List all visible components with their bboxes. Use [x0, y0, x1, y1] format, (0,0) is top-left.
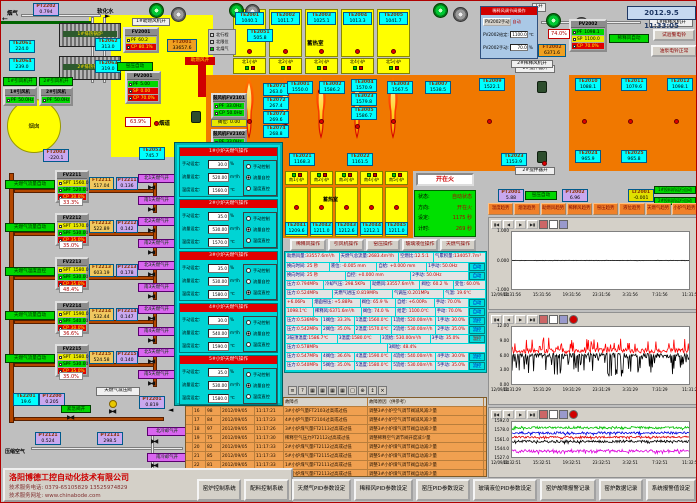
- bottom-button-7[interactable]: 窑炉数据记录: [599, 479, 643, 501]
- sensor-dot: [487, 119, 492, 124]
- y-tick-label: 1561.0: [489, 437, 509, 443]
- data-value: 19.6℃: [455, 291, 471, 296]
- gas-auto-mode-label: 天燃气流量自动: [5, 223, 55, 232]
- radio-row[interactable]: 流量自控: [244, 328, 276, 339]
- data-label: 4手动:: [437, 354, 450, 359]
- controller-row: SPT1560.0: [58, 180, 86, 186]
- mode-chip: 自动: [469, 299, 485, 307]
- cooling-south-valve-label[interactable]: 南冷却气开: [147, 453, 187, 462]
- status-label: 方向:: [418, 203, 430, 214]
- controller-row: CP70.0%: [128, 95, 158, 101]
- popup-field-input[interactable]: 1580.0: [208, 290, 229, 299]
- op-button-3[interactable]: 玻璃液位操作: [402, 239, 438, 251]
- sensor-TE2062: TE2062313.0: [95, 38, 121, 51]
- param-label: CP: [131, 45, 137, 50]
- valve-icon[interactable]: ▶◀: [148, 294, 153, 300]
- valve-icon[interactable]: ▶◀: [148, 338, 153, 344]
- sensor-value: 0.819: [140, 403, 164, 409]
- radio-row[interactable]: 温度直控: [244, 183, 276, 194]
- toolbar-icon[interactable]: ×: [378, 386, 387, 395]
- dialog-sp-input[interactable]: 1100.0: [510, 31, 528, 38]
- popup-field-unit: ℃: [230, 239, 242, 247]
- series-3#小炉: [512, 436, 689, 439]
- radio-icon[interactable]: [246, 279, 251, 284]
- x-tick-label: 11:31:29: [503, 387, 521, 392]
- combustion-air-on-label: 助燃风开: [185, 57, 215, 65]
- sensor-dot: [319, 49, 324, 54]
- data-cell: 4温度:1590.0℃: [355, 353, 392, 361]
- popup-field-input[interactable]: 530.00: [208, 381, 229, 390]
- data-cell: 2手动: 35.0%: [436, 326, 468, 334]
- trend-button-3[interactable]: 稀释风趋势: [567, 203, 592, 215]
- popup-field-unit: m³/h: [230, 382, 242, 390]
- chart-nav-button[interactable]: ▶: [515, 315, 526, 324]
- data-label: 手动:: [437, 309, 447, 314]
- port-label: 南2小炉: [311, 177, 332, 183]
- alarm-cell: 调整稀释空气调节阀开度减少量: [368, 434, 484, 442]
- chart-nav-button[interactable]: ▶▮: [527, 220, 538, 229]
- valve-icon[interactable]: ▶◀: [109, 409, 114, 415]
- data-label: 气调压:: [394, 291, 408, 296]
- op-button-4[interactable]: 天燃气操作: [440, 239, 476, 251]
- sensor-value: 1586.2: [320, 88, 344, 94]
- param-label: SP: [133, 89, 138, 94]
- bottom-button-2[interactable]: 天燃气PID参数设定: [292, 479, 351, 501]
- port-tab-south[interactable]: 南2小炉: [310, 171, 333, 185]
- port-tab-north[interactable]: 北2小炉: [269, 58, 302, 74]
- summary-cell: 空燃比:12.5:1: [399, 253, 433, 262]
- controller-row: PF33.0Hz: [214, 103, 244, 109]
- radio-icon[interactable]: [246, 383, 251, 388]
- sensor-tag: PT2214: [117, 309, 137, 315]
- record-icon[interactable]: [569, 410, 578, 419]
- radio-icon[interactable]: [246, 216, 251, 221]
- radio-row[interactable]: 温度直控: [244, 391, 276, 402]
- datetime-display: 2012.9.5 11:33:05: [627, 6, 696, 20]
- y-tick-label: 1578.0: [489, 427, 509, 433]
- status-label: 设定:: [418, 213, 430, 224]
- data-value: 70.0%: [447, 309, 462, 314]
- toolbar-icon[interactable]: ▦: [308, 386, 317, 395]
- gas-valve-south-label[interactable]: 南3天燃气开: [138, 283, 175, 292]
- toolbar-icon[interactable]: ▦: [318, 386, 327, 395]
- sensor-value: 1212.1: [361, 229, 382, 235]
- sensor-value: 1211.0: [311, 229, 332, 235]
- y-tick-label: 1592.0: [489, 418, 509, 424]
- radio-row[interactable]: 温度直控: [244, 287, 276, 298]
- alarm-cell: 11:17:23: [255, 416, 284, 424]
- data-value: 35.0%: [444, 336, 459, 341]
- valve-icon[interactable]: ▶◀: [148, 250, 153, 256]
- radio-label: 手动控制: [253, 164, 270, 170]
- indicator-square: [43, 99, 46, 102]
- sensor-TE2021: TE20211168.3: [289, 153, 315, 166]
- popup-field-input[interactable]: 530.00: [208, 225, 229, 234]
- data-cell: 2流给: 530.00m³/h: [392, 326, 435, 334]
- alarm-row[interactable]: 19752012/09/0511:17:30稀释空气压力PT2112过高或过低调…: [186, 434, 486, 443]
- right-arrow-icon: ►: [105, 13, 110, 20]
- alarm-cell: 4#小炉气量FT2104过高或过低: [284, 416, 368, 424]
- alarm-cell: 调整3#小炉煤气调节阀自动减少量: [368, 425, 484, 433]
- alarm-row[interactable]: 18972012/09/0511:17:263#小炉煤气量FT2113过高或过低…: [186, 425, 486, 434]
- indicator-square: [59, 363, 62, 366]
- sensor-TE2001: TE20011040.1: [235, 12, 264, 25]
- popup-field-input[interactable]: 1570.0: [208, 238, 229, 247]
- sensor-tag: PT2121: [36, 433, 60, 439]
- popup-field-input[interactable]: 1580.0: [208, 394, 229, 403]
- data-cell: 液位: -0.005 mm: [330, 263, 377, 271]
- radio-icon[interactable]: [246, 331, 251, 336]
- data-label: 压力:: [287, 345, 297, 350]
- radio-icon[interactable]: [246, 290, 251, 295]
- sensor-value: 313.0: [96, 45, 120, 51]
- sensor-dot: [674, 119, 679, 124]
- port-tab-south[interactable]: 南4小炉: [360, 171, 383, 185]
- popup-field-input[interactable]: 30.0: [208, 316, 229, 325]
- row-cursor: [186, 416, 193, 424]
- radio-row[interactable]: 流量自控: [244, 380, 276, 391]
- printer-icon[interactable]: [539, 220, 548, 229]
- chimney: 烟囱: [7, 99, 61, 153]
- gas-valve-north-label[interactable]: 北3天燃气开: [138, 261, 175, 270]
- sensor-tag: TE2025: [622, 151, 646, 157]
- alarm-row[interactable]: 17842012/09/0511:17:234#小炉气量FT2104过高或过低调…: [186, 416, 486, 425]
- radio-row[interactable]: 手动控制: [244, 317, 276, 328]
- chart-nav-button[interactable]: ▶: [515, 220, 526, 229]
- gas-valve-south-label[interactable]: 南2天燃气开: [138, 239, 175, 248]
- zoom-icon[interactable]: [549, 410, 558, 419]
- sensor-tag: FT2212: [90, 221, 113, 227]
- alarm-cell: 2012/09/05: [221, 452, 255, 460]
- data-value: 35.0%: [450, 327, 465, 332]
- gas-valve-south-label[interactable]: 南1天燃气开: [138, 196, 175, 205]
- popup-field-input[interactable]: 1590.0: [208, 342, 229, 351]
- data-value: 74.0 %: [373, 309, 389, 314]
- valve-icon[interactable]: ▶◀: [148, 316, 153, 322]
- sensor-value: 1079.6: [622, 85, 646, 91]
- popup-section-1: 1#小炉天燃气操作手动设定:30.0%流量设定:520.00m³/h温度设定:1…: [179, 147, 278, 197]
- y-tick-label: 1.000: [489, 228, 509, 234]
- alarm-cell: 98: [206, 407, 221, 415]
- dialog-manual-input[interactable]: 70.0: [510, 44, 528, 51]
- bottom-button-1[interactable]: 配料控制系统: [244, 479, 288, 501]
- toolbar-icon[interactable]: ▦: [338, 386, 347, 395]
- op-button-2[interactable]: 窑压操作: [366, 239, 400, 251]
- param-value: 1580.0: [73, 355, 88, 360]
- data-cell: 压力:0.578MPa: [286, 344, 387, 352]
- data-cell: 3碹顶温度:1586.7℃: [286, 335, 337, 343]
- gas-valve-north-label[interactable]: 北4天燃气开: [138, 305, 175, 314]
- radio-row[interactable]: 流量自控: [244, 172, 276, 183]
- sensor-TE2011: TE20111079.6: [621, 78, 647, 91]
- summary-label: 空燃比:: [400, 254, 415, 259]
- trend-button-4[interactable]: 窑压趋势: [593, 203, 618, 215]
- data-label: 4温度:: [356, 354, 369, 359]
- alarm-row[interactable]: 16982012/09/0511:17:213#小炉气量FT2103过高或过低调…: [186, 407, 486, 416]
- printer-icon[interactable]: [539, 410, 548, 419]
- valve-icon[interactable]: ▶◀: [148, 228, 153, 234]
- toolbar-icon[interactable]: □: [348, 386, 357, 395]
- sensor-TE2042: TE20421211.0: [310, 222, 333, 235]
- valve-icon[interactable]: ▶◀: [148, 381, 153, 387]
- bottom-button-0[interactable]: 窑炉控制系统: [197, 479, 241, 501]
- alarm-row[interactable]: 21852012/09/0511:17:335#小炉煤气量FT2115过高或过低…: [186, 452, 486, 461]
- data-row: 压力:0.536MPa1阀位: 33.3%1温度:1560.0℃1流给: 520…: [286, 317, 485, 325]
- popup-section-title: 5#小炉天燃气操作: [180, 356, 277, 364]
- popup-field-input[interactable]: 1560.0: [208, 186, 229, 195]
- controller-FV2001: FV2001PF60.2CP80.1%: [123, 27, 159, 53]
- popup-field-input[interactable]: 35.0: [208, 264, 229, 273]
- gas-valve-south-label[interactable]: 南5天燃气开: [138, 370, 175, 379]
- trend-chart-0: ▮◀◀▶▶▮1.0000.000-1.00012/09/0411:31:5615…: [488, 217, 697, 310]
- bottom-button-8[interactable]: 系统报警值设定: [646, 479, 696, 501]
- popup-field-input[interactable]: 35.0: [208, 368, 229, 377]
- sensor-PT2212: PT22120.142: [116, 220, 138, 233]
- y-tick-label: 6.00: [489, 353, 509, 359]
- port-tab-north[interactable]: 北5小炉: [377, 58, 410, 74]
- radio-row[interactable]: 手动控制: [244, 265, 276, 276]
- fire-direction-button[interactable]: 开在火: [416, 173, 474, 186]
- save-icon[interactable]: [559, 220, 568, 229]
- trend-button-6[interactable]: 天燃气趋势: [646, 203, 671, 215]
- gas-valve-north-label[interactable]: 北1天燃气开: [138, 174, 175, 183]
- bottom-button-4[interactable]: 窑压PID参数设定: [416, 479, 470, 501]
- data-value: +5.88Pa: [333, 300, 353, 305]
- alarm-cell: 20: [193, 443, 206, 451]
- valve-icon[interactable]: ▶◀: [148, 359, 153, 365]
- popup-field-unit: %: [230, 213, 242, 221]
- data-cell: 天燃气进压:0.819MPa: [333, 290, 392, 298]
- radio-icon[interactable]: [246, 342, 251, 347]
- sensor-TE2009: TE20091522.1: [479, 78, 505, 91]
- flow-arrow-icon: ◄: [168, 407, 173, 414]
- trend-button-7[interactable]: 小炉气趋势: [672, 203, 697, 215]
- radio-icon[interactable]: [246, 372, 251, 377]
- data-value: +6.06Pa: [287, 300, 305, 305]
- toolbar-icon[interactable]: ▦: [328, 386, 337, 395]
- data-label: 压力:: [287, 363, 297, 368]
- table-toolbar: ≡?▦▦▦▦□⊕↕×: [288, 386, 438, 396]
- radio-icon[interactable]: [246, 175, 251, 180]
- x-tick-label: 19:32:51: [563, 460, 581, 465]
- popup-section-title: 1#小炉天燃气操作: [180, 148, 277, 156]
- popup-section-4: 4#小炉天燃气操作手动设定:30.0%流量设定:540.00m³/h温度设定:1…: [179, 303, 278, 353]
- trend-button-1[interactable]: 烟温趋势: [514, 203, 539, 215]
- gas-valve-south-label[interactable]: 南4天燃气开: [138, 327, 175, 336]
- pv2002-manual-button[interactable]: PV2002手动: [483, 18, 511, 26]
- data-cell: 阀位: 74.0 %: [362, 308, 396, 316]
- sensor-TE2002: TE20021011.7: [271, 12, 300, 25]
- toolbar-icon[interactable]: ?: [298, 386, 307, 395]
- radio-row[interactable]: 流量自控: [244, 224, 276, 235]
- chart-plot-area: [511, 231, 690, 290]
- test-bell-button[interactable]: 试验警电铃: [653, 29, 695, 41]
- data-cell: 压力:0.542MPa: [286, 326, 321, 334]
- sensor-tag: PT2131: [98, 433, 122, 439]
- toolbar-icon[interactable]: ≡: [288, 386, 297, 395]
- op-button-1[interactable]: 引风机操作: [328, 239, 364, 251]
- valve-icon[interactable]: ▶◀: [148, 207, 153, 213]
- indicator-square: [573, 38, 576, 41]
- pump-bell-button[interactable]: 油泵电铃正常: [651, 45, 697, 57]
- data-row: 换向时间: 25 秒自控: +0.000 mm2手动: 50.0Hz自动: [286, 272, 485, 280]
- sensor-value: 524.58: [90, 358, 113, 364]
- popup-field-input[interactable]: 540.00: [208, 329, 229, 338]
- y-tick-label: 3.00: [489, 367, 509, 373]
- op-button-0[interactable]: 稀释风操作: [290, 239, 326, 251]
- param-label: PF: [219, 104, 224, 109]
- trend-button-0[interactable]: 温度趋势: [488, 203, 513, 215]
- popup-field-input[interactable]: 520.00: [208, 173, 229, 182]
- data-value: 1100.0℃: [407, 309, 428, 314]
- x-tick-label: 3:31:56: [622, 292, 637, 297]
- data-value: 1580.0℃: [352, 336, 372, 341]
- radio-icon[interactable]: [246, 394, 251, 399]
- gas-reducer-label: 天燃气减压阀: [96, 387, 140, 396]
- port-tab-south[interactable]: 南3小炉: [335, 171, 358, 185]
- alarm-cell: 2012/09/05: [221, 407, 255, 415]
- port-tab-north[interactable]: 北1小炉: [233, 58, 266, 74]
- radio-row[interactable]: 手动控制: [244, 213, 276, 224]
- gas-valve-north-label[interactable]: 北5天燃气开: [138, 348, 175, 357]
- id-fan2-on-label: 2#引风机开: [39, 77, 73, 86]
- controller-title: PV2001: [127, 73, 159, 80]
- sensor-tag: FT2215: [90, 352, 113, 358]
- popup-field-unit: %: [230, 265, 242, 273]
- param-value: 1570.0: [73, 224, 88, 229]
- alarm-cell: 调整3#小炉煤气调节阀自动减少量: [368, 470, 484, 477]
- alarm-cell: 11:17:30: [255, 434, 284, 442]
- sensor-dot: [355, 124, 360, 129]
- alarm-cell: 3#小炉煤气量FT2113过高或过低: [284, 425, 368, 433]
- sensor-value: 1098.1: [668, 85, 692, 91]
- x-tick-label: 11:32:51: [682, 460, 697, 465]
- port-tab-north[interactable]: 北3小炉: [305, 58, 338, 74]
- bottom-button-6[interactable]: 窑炉故障报警记录: [540, 479, 595, 501]
- dialog-sp-unit: ℃: [529, 32, 534, 37]
- param-label: PF: [577, 30, 582, 35]
- sensor-TE2023: TE20231153.9: [501, 153, 527, 166]
- radio-row[interactable]: 手动控制: [244, 161, 276, 172]
- cooling-north-valve-label[interactable]: 北冷却气开: [147, 427, 187, 436]
- controller-row: CP50.0Hz: [214, 110, 244, 116]
- port-tab-north[interactable]: 北4小炉: [341, 58, 374, 74]
- sensor-tag: TE3023: [352, 94, 376, 100]
- data-value: 50.0Hz: [425, 273, 441, 278]
- radio-row[interactable]: 手动控制: [244, 369, 276, 380]
- printer-icon[interactable]: [539, 315, 548, 324]
- data-row: 压力:0.542MPa2阀位: 35.0%2温度:1570.0℃2流给: 530…: [286, 326, 485, 334]
- chart-nav-button[interactable]: ▶▮: [527, 315, 538, 324]
- popup-section-title: 3#小炉天燃气操作: [180, 252, 277, 260]
- sensor-TE2073: TE2073269.6: [263, 111, 289, 124]
- x-tick-label: 23:31:56: [593, 292, 611, 297]
- alarm-header-cell: 故障原因（供参考）: [368, 398, 484, 406]
- gas-auto-mode-label: 天燃气流量自动: [5, 311, 55, 320]
- save-icon[interactable]: [559, 410, 568, 419]
- data-value: 0.524MPa: [297, 291, 318, 296]
- radio-icon[interactable]: [246, 164, 251, 169]
- radio-icon[interactable]: [246, 320, 251, 325]
- bottom-button-3[interactable]: 稀释风PID参数设定: [354, 479, 413, 501]
- sensor-TE2005: TE20051041.7: [379, 12, 408, 25]
- gas-auto-mode-label: 天燃气流量自动: [5, 354, 55, 363]
- valve-icon[interactable]: ▶◀: [151, 439, 156, 445]
- chart-plot-area: [511, 421, 690, 458]
- radio-icon[interactable]: [246, 186, 251, 191]
- trend-button-2[interactable]: 助燃风趋势: [541, 203, 566, 215]
- valve-icon[interactable]: ▶◀: [148, 185, 153, 191]
- toolbar-icon[interactable]: ↕: [368, 386, 377, 395]
- param-label: CP: [577, 44, 583, 49]
- controller-row: CP70.0%: [572, 43, 604, 49]
- port-tab-south[interactable]: 南1小炉: [285, 171, 308, 185]
- port-tab-south[interactable]: 南5小炉: [385, 171, 408, 185]
- radio-row[interactable]: 温度直控: [244, 339, 276, 350]
- status-label: 状态:: [418, 192, 430, 203]
- sensor-tag: PT2001: [499, 190, 523, 196]
- popup-field-input[interactable]: 35.0: [208, 212, 229, 221]
- port-label: 北4小炉: [342, 59, 373, 65]
- sensor-dot: [154, 121, 159, 126]
- sensor-tag: PT2211: [117, 178, 137, 184]
- bottom-button-5[interactable]: 玻璃液位PID参数设定: [473, 479, 538, 501]
- indicator-square: [127, 46, 130, 49]
- zoom-icon[interactable]: [549, 220, 558, 229]
- radio-icon[interactable]: [246, 238, 251, 243]
- gas-valve-north-label[interactable]: 北2天燃气开: [138, 217, 175, 226]
- radio-row[interactable]: 流量自控: [244, 276, 276, 287]
- summary-value: 33557.6m³/h: [306, 254, 334, 259]
- valve-icon[interactable]: ▶◀: [67, 415, 72, 421]
- x-tick-label: 7:32:51: [652, 460, 667, 465]
- sensor-value: 1570.9: [352, 86, 376, 92]
- chart-nav-button[interactable]: ▶: [515, 410, 526, 419]
- port-indicators: [342, 66, 373, 70]
- data-cell: 1098.1℃: [286, 308, 313, 316]
- controller-title: 鼓风机FV2102: [213, 131, 245, 138]
- data-value: +6.00Pa: [407, 300, 427, 305]
- zoom-icon[interactable]: [549, 315, 558, 324]
- param-value: 60.2: [138, 38, 148, 43]
- popup-field-input[interactable]: 30.0: [208, 160, 229, 169]
- radio-icon[interactable]: [246, 227, 251, 232]
- save-icon[interactable]: [559, 315, 568, 324]
- radio-icon[interactable]: [246, 268, 251, 273]
- indicator-square: [59, 189, 62, 192]
- radio-label: 温度直控: [253, 342, 270, 348]
- popup-field-input[interactable]: 530.00: [208, 277, 229, 286]
- valve-icon[interactable]: ▶◀: [148, 272, 153, 278]
- toolbar-icon[interactable]: ⊕: [358, 386, 367, 395]
- data-label: 2流给:: [393, 327, 406, 332]
- sensor-TE2004: TE20041013.3: [343, 12, 372, 25]
- record-icon[interactable]: [569, 315, 578, 324]
- radio-row[interactable]: 温度直控: [244, 235, 276, 246]
- data-label: 压力:: [287, 327, 297, 332]
- sensor-tag: LT2001: [629, 190, 653, 196]
- alarm-row[interactable]: 20822012/09/0511:17:332#小炉煤气量FT2112过高或过低…: [186, 443, 486, 452]
- chart-nav-button[interactable]: ▶▮: [527, 410, 538, 419]
- alarm-cell: 16: [193, 407, 206, 415]
- controller-PV2001: PV2001PF5.00SP0.00CP70.0%: [125, 71, 161, 104]
- controller-row: PF60.2: [126, 37, 156, 43]
- trend-button-5[interactable]: 液位趋势: [619, 203, 644, 215]
- data-cell: 换向时间: 25 秒: [286, 263, 329, 271]
- controller-row: SP0.00: [128, 88, 158, 94]
- indicator-square: [7, 99, 10, 102]
- x-tick-label: 3:32:51: [622, 460, 637, 465]
